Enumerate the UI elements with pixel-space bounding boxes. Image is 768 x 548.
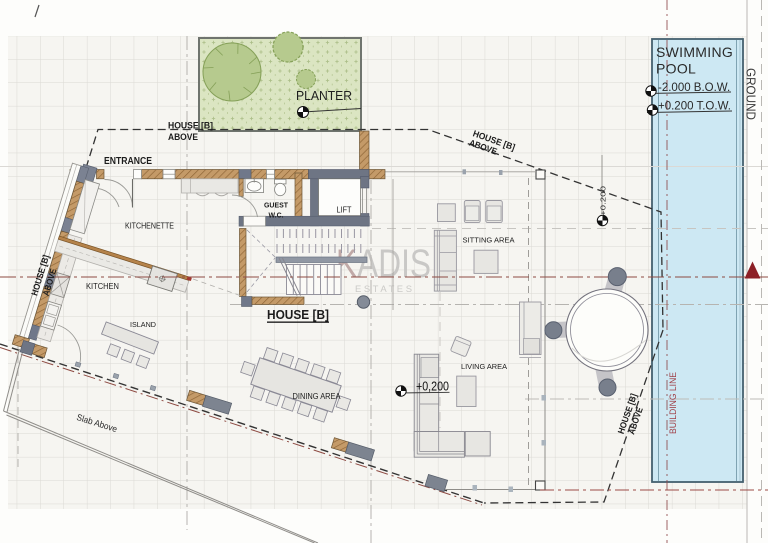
svg-text:POOL: POOL	[656, 61, 696, 77]
svg-text:PLANTER: PLANTER	[296, 89, 352, 103]
svg-text:LIFT: LIFT	[337, 205, 352, 215]
svg-text:HOUSE [B]: HOUSE [B]	[267, 308, 329, 322]
svg-text:+0,200: +0,200	[416, 380, 449, 394]
svg-text:ENTRANCE: ENTRANCE	[104, 156, 152, 167]
svg-text:KITCHENETTE: KITCHENETTE	[125, 222, 174, 231]
svg-text:E S T A T E S: E S T A T E S	[355, 284, 412, 295]
svg-text:LIVING AREA: LIVING AREA	[461, 362, 507, 371]
svg-text:KITCHEN: KITCHEN	[86, 282, 119, 291]
svg-text:+0.200: +0.200	[599, 186, 608, 216]
svg-text:KADIS: KADIS	[336, 242, 431, 286]
svg-text:ISLAND: ISLAND	[130, 320, 157, 329]
svg-text:SWIMMING: SWIMMING	[656, 44, 733, 60]
svg-text:DINING AREA: DINING AREA	[293, 392, 342, 401]
svg-text:GROUND: GROUND	[744, 68, 758, 120]
svg-text:GUEST: GUEST	[264, 201, 288, 210]
svg-text:SITTING AREA: SITTING AREA	[463, 236, 515, 245]
svg-text:ABOVE: ABOVE	[168, 132, 198, 143]
svg-text:HOUSE [B]: HOUSE [B]	[168, 121, 213, 132]
svg-text:+0.200 T.O.W.: +0.200 T.O.W.	[658, 101, 731, 113]
svg-text:BUILDING LINE: BUILDING LINE	[668, 372, 679, 434]
svg-text:W.C.: W.C.	[269, 211, 284, 220]
